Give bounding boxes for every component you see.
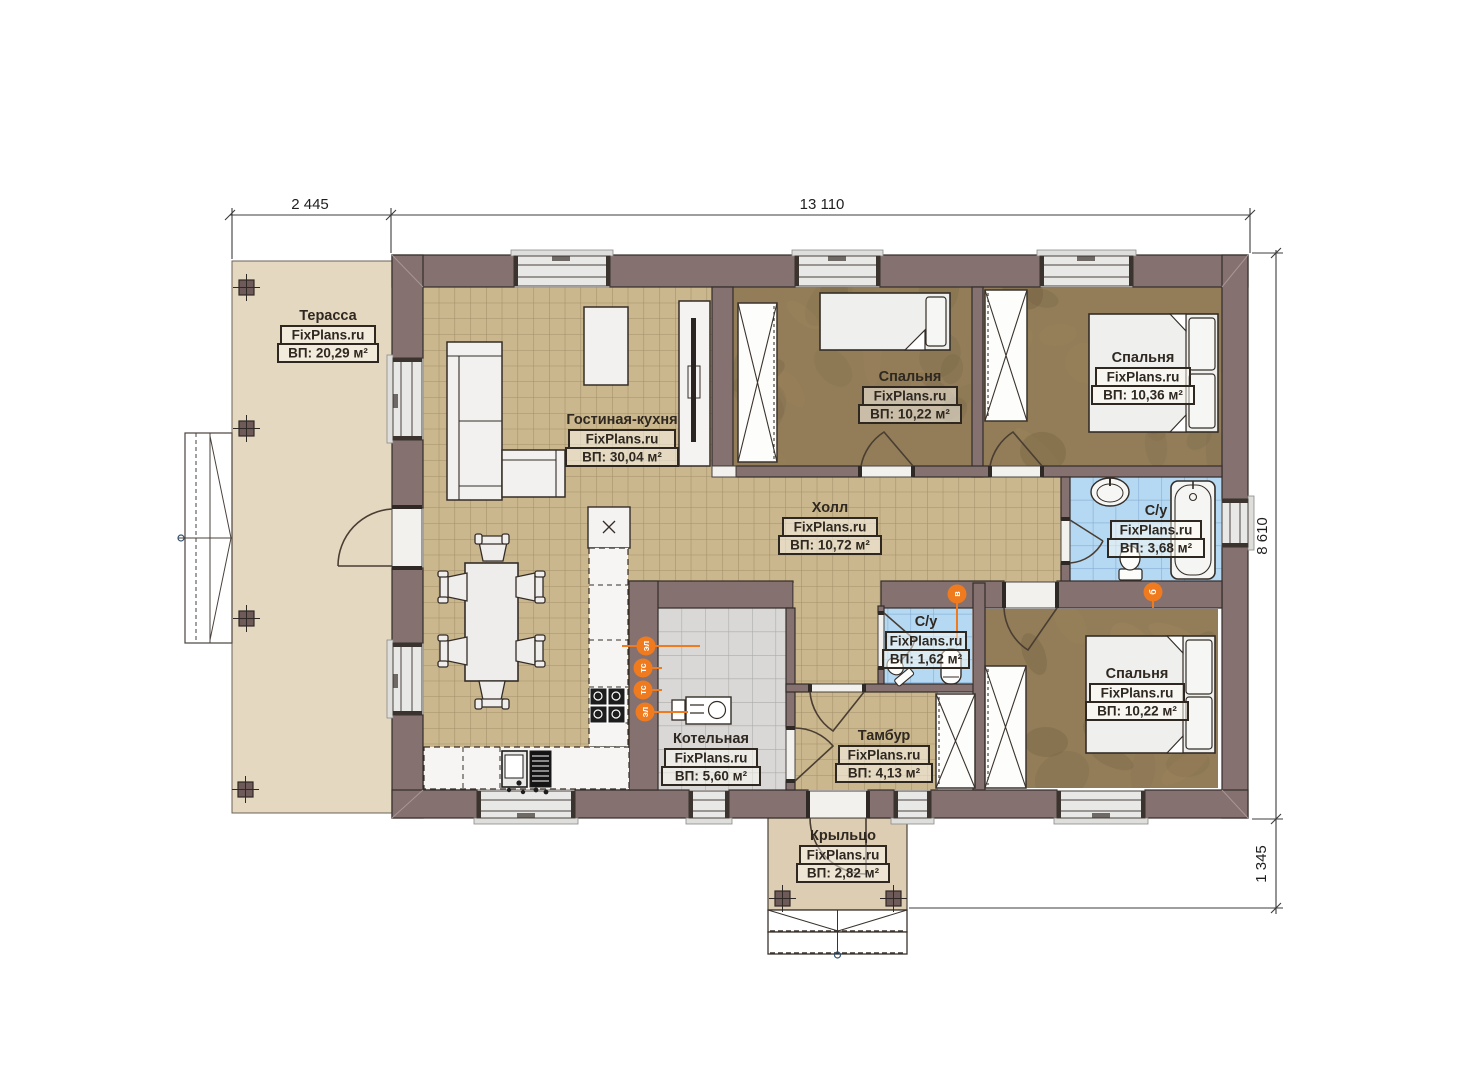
svg-text:С/у: С/у bbox=[1145, 503, 1168, 519]
svg-text:Крыльцо: Крыльцо bbox=[810, 828, 876, 844]
svg-text:ВП: 2,82 м²: ВП: 2,82 м² bbox=[807, 866, 880, 881]
svg-text:Спальня: Спальня bbox=[879, 369, 942, 385]
svg-text:ВП: 3,68 м²: ВП: 3,68 м² bbox=[1120, 541, 1193, 556]
svg-text:ВП: 10,72 м²: ВП: 10,72 м² bbox=[790, 538, 870, 553]
svg-text:FixPlans.ru: FixPlans.ru bbox=[807, 848, 880, 863]
svg-text:тс: тс bbox=[638, 685, 648, 694]
svg-text:ВП: 30,04 м²: ВП: 30,04 м² bbox=[582, 450, 662, 465]
svg-text:1 345: 1 345 bbox=[1253, 845, 1270, 883]
svg-text:Тамбур: Тамбур bbox=[858, 728, 911, 744]
svg-text:FixPlans.ru: FixPlans.ru bbox=[1120, 523, 1193, 538]
svg-text:FixPlans.ru: FixPlans.ru bbox=[1101, 686, 1174, 701]
svg-text:FixPlans.ru: FixPlans.ru bbox=[874, 389, 947, 404]
svg-text:ВП: 10,22 м²: ВП: 10,22 м² bbox=[1097, 704, 1177, 719]
svg-text:ВП: 10,22 м²: ВП: 10,22 м² bbox=[870, 407, 950, 422]
svg-text:Холл: Холл bbox=[812, 500, 848, 516]
svg-text:ВП: 20,29 м²: ВП: 20,29 м² bbox=[288, 346, 368, 361]
svg-text:тс: тс bbox=[638, 663, 648, 672]
svg-text:FixPlans.ru: FixPlans.ru bbox=[586, 432, 659, 447]
svg-text:8 610: 8 610 bbox=[1254, 517, 1271, 555]
svg-text:FixPlans.ru: FixPlans.ru bbox=[292, 328, 365, 343]
svg-text:ВП: 4,13 м²: ВП: 4,13 м² bbox=[848, 766, 921, 781]
svg-text:Спальня: Спальня bbox=[1112, 350, 1175, 366]
svg-text:FixPlans.ru: FixPlans.ru bbox=[794, 520, 867, 535]
svg-text:13 110: 13 110 bbox=[800, 196, 845, 213]
svg-text:б: б bbox=[1148, 589, 1158, 595]
svg-text:FixPlans.ru: FixPlans.ru bbox=[848, 748, 921, 763]
svg-text:С/у: С/у bbox=[915, 614, 938, 630]
svg-text:Терасса: Терасса bbox=[299, 308, 357, 324]
svg-text:в: в bbox=[952, 591, 962, 597]
svg-text:эл: эл bbox=[640, 706, 650, 717]
svg-text:эл: эл bbox=[641, 640, 651, 651]
svg-text:ВП: 1,62 м²: ВП: 1,62 м² bbox=[890, 652, 963, 667]
svg-text:ВП: 10,36 м²: ВП: 10,36 м² bbox=[1103, 388, 1183, 403]
svg-text:Котельная: Котельная bbox=[673, 731, 749, 747]
svg-text:ВП: 5,60 м²: ВП: 5,60 м² bbox=[675, 769, 748, 784]
svg-text:Гостиная-кухня: Гостиная-кухня bbox=[566, 412, 677, 428]
svg-text:Спальня: Спальня bbox=[1106, 666, 1169, 682]
svg-text:FixPlans.ru: FixPlans.ru bbox=[1107, 370, 1180, 385]
svg-text:2 445: 2 445 bbox=[291, 196, 329, 213]
svg-text:FixPlans.ru: FixPlans.ru bbox=[890, 634, 963, 649]
svg-text:FixPlans.ru: FixPlans.ru bbox=[675, 751, 748, 766]
